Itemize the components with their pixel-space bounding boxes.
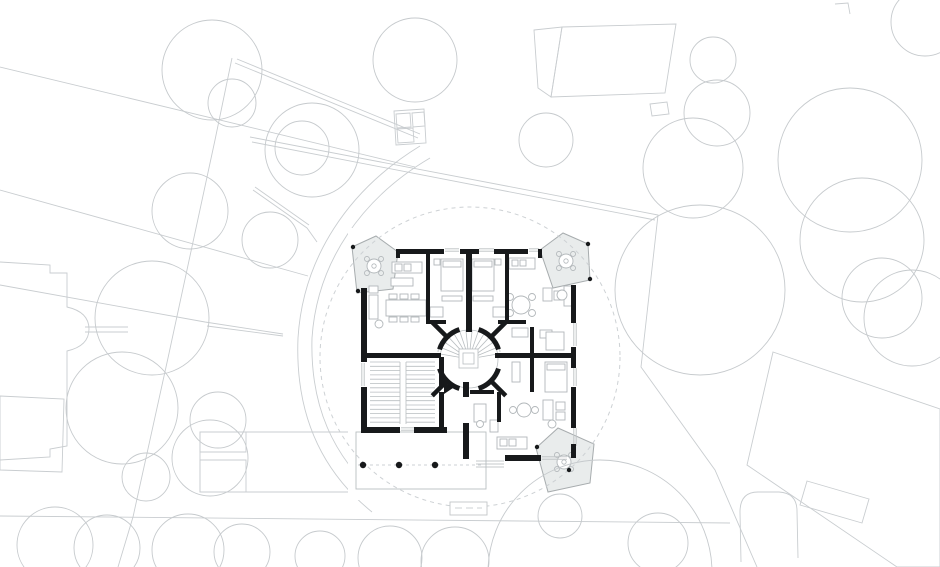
furniture-item-round xyxy=(529,294,536,301)
furniture-item xyxy=(520,260,526,266)
furniture-item-round xyxy=(532,407,539,414)
furniture-item xyxy=(495,259,501,265)
furniture-item-round xyxy=(512,296,530,314)
wall-segment xyxy=(497,392,501,422)
wall-segment xyxy=(571,444,576,458)
terrace-post-dot xyxy=(535,445,539,449)
furniture-item xyxy=(404,264,411,271)
furniture-item xyxy=(512,362,520,382)
furniture-item xyxy=(395,264,402,271)
site-plan-canvas xyxy=(0,0,940,567)
garden-bed xyxy=(450,502,487,515)
furniture-item xyxy=(543,400,553,420)
terrace-post-dot xyxy=(567,468,571,472)
wall-segment xyxy=(571,285,576,323)
terrace-post-dot xyxy=(586,242,590,246)
wall-segment xyxy=(538,249,542,258)
furniture-item xyxy=(411,294,419,299)
porch-column xyxy=(432,462,438,468)
furniture-item xyxy=(500,439,507,446)
furniture-item xyxy=(389,317,397,322)
wall-segment xyxy=(530,358,534,392)
furniture-item xyxy=(430,307,443,317)
furniture-item-round xyxy=(477,421,484,428)
wall-segment xyxy=(361,353,441,358)
furniture-item xyxy=(369,286,378,293)
furniture-item xyxy=(490,420,498,432)
wall-segment xyxy=(463,382,469,397)
furniture-item xyxy=(512,328,528,337)
furniture-item xyxy=(509,439,516,446)
wall-segment xyxy=(398,249,444,254)
wall-segment xyxy=(505,455,541,461)
wall-segment xyxy=(466,252,472,332)
furniture-item xyxy=(547,364,565,370)
wall-segment xyxy=(571,387,576,428)
furniture-item xyxy=(389,294,397,299)
wall-segment xyxy=(439,392,444,428)
terrace-post-dot xyxy=(356,289,360,293)
wall-segment xyxy=(470,390,494,394)
wall-segment xyxy=(361,427,400,433)
furniture-item xyxy=(474,404,486,422)
wall-segment xyxy=(530,327,534,354)
furniture-item xyxy=(543,288,552,301)
furniture-item-round xyxy=(510,407,517,414)
wall-segment xyxy=(495,353,576,358)
wall-segment xyxy=(494,249,528,254)
stair-core-shaft xyxy=(459,349,478,368)
furniture-item-round xyxy=(529,310,536,317)
site-plan-svg xyxy=(0,0,940,567)
furniture-item xyxy=(411,317,419,322)
wall-segment xyxy=(361,288,367,362)
furniture-item xyxy=(493,307,506,317)
furniture-item xyxy=(400,317,408,322)
furniture-item-round xyxy=(375,320,383,328)
wall-segment xyxy=(426,252,430,322)
furniture-item xyxy=(512,260,518,266)
furniture-item xyxy=(434,259,440,265)
furniture-item xyxy=(473,296,493,301)
furniture-item-round xyxy=(517,403,531,417)
site-plan-drawing xyxy=(0,0,940,567)
furniture-item xyxy=(474,261,492,267)
terrace-table xyxy=(559,254,573,268)
porch-column xyxy=(396,462,402,468)
furniture-item-round xyxy=(557,290,567,300)
furniture-item-round xyxy=(548,420,556,428)
wall-segment xyxy=(463,423,469,459)
porch-column xyxy=(360,462,366,468)
furniture-item xyxy=(442,296,462,301)
furniture-item xyxy=(546,332,564,350)
furniture-item xyxy=(443,261,461,267)
furniture-item xyxy=(556,402,565,410)
terrace-post-dot xyxy=(588,277,592,281)
furniture-item xyxy=(369,295,378,319)
furniture-item xyxy=(400,294,408,299)
terrace-post-dot xyxy=(351,245,355,249)
terrace-table xyxy=(367,259,381,273)
wall-segment xyxy=(361,387,367,430)
wall-segment xyxy=(396,249,400,258)
wall-segment xyxy=(505,252,509,322)
furniture-item xyxy=(556,412,565,420)
furniture-item xyxy=(391,278,413,286)
furniture-item xyxy=(386,300,426,316)
